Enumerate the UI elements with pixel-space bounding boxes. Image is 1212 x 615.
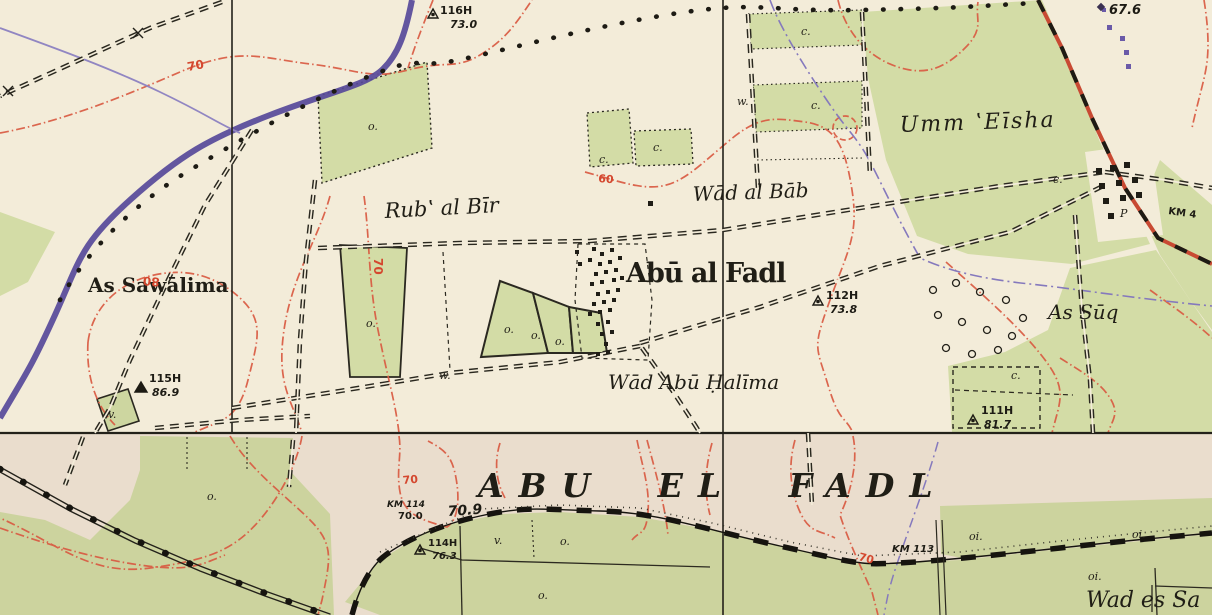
tri-115-elev: 86.9 — [152, 386, 179, 399]
parcel-letter: oi. — [969, 530, 983, 543]
parcel-letter: o. — [560, 535, 570, 548]
tri-111-station: 111H — [981, 404, 1013, 417]
tri-114-station: 114H — [428, 538, 457, 549]
parcel-letter: P — [1119, 207, 1128, 220]
parcel-letter: w. — [439, 369, 451, 382]
km-114-elev: 70.0 — [398, 511, 423, 522]
parcel-letter: c. — [811, 99, 821, 112]
parcel-letter: o. — [504, 323, 514, 336]
contour-70-a: 70 — [186, 57, 205, 74]
tri-116-station: 116H — [440, 4, 472, 17]
parcel-letter: c. — [801, 25, 811, 38]
parcel-letter: c. — [653, 141, 663, 154]
benchmark-70-9: 70.9 — [447, 502, 483, 520]
contour-60: 60 — [598, 172, 615, 186]
km-114-label: KM 114 — [387, 500, 425, 510]
km-113-label: KM 113 — [892, 544, 934, 555]
label-sheet-title: ABU EL FADL — [475, 466, 948, 505]
contour-80: 80 — [142, 274, 160, 289]
tri-116-elev: 73.0 — [450, 18, 477, 31]
parcel-letter: o. — [538, 589, 548, 602]
label-wad-es-sa: Wad es Sa — [1086, 588, 1200, 613]
parcel-letter: c. — [1053, 173, 1063, 186]
parcel-letter: o. — [368, 120, 378, 133]
parcel-letter: v. — [494, 534, 502, 547]
parcel-letter: o. — [531, 329, 541, 342]
parcel-letter: v. — [108, 408, 116, 421]
label-abu-al-fadl: Abū al Fadl — [625, 258, 786, 289]
label-wad-abu-halima: Wād Abū Ḥalīma — [608, 370, 779, 394]
parcel-letter: o. — [555, 335, 565, 348]
survey-map: Rubʽ al Bīr Wād al Bāb Abū al Fadl As Sa… — [0, 0, 1212, 615]
label-as-suq: As Sūq — [1046, 300, 1118, 324]
parcel-letter: o. — [366, 317, 376, 330]
parcel-letter: c. — [1011, 369, 1021, 382]
tri-115-station: 115H — [149, 372, 181, 385]
label-wad-al-bab: Wād al Bāb — [692, 178, 809, 206]
parcel-letter: w. — [737, 95, 749, 108]
spot-height-67-6: 67.6 — [1109, 3, 1141, 18]
parcel-letter: c. — [599, 153, 609, 166]
map-canvas: Rubʽ al Bīr Wād al Bāb Abū al Fadl As Sa… — [0, 0, 1212, 615]
tri-114-elev: 76.3 — [432, 551, 457, 562]
tri-111-elev: 81.7 — [984, 418, 1011, 431]
tri-112-elev: 73.8 — [830, 303, 857, 316]
parcel-letter: o. — [207, 490, 217, 503]
contour-70-b: 70 — [371, 258, 385, 275]
tri-112-station: 112H — [826, 289, 858, 302]
parcel-letter: oi. — [1088, 570, 1102, 583]
contour-70-c: 70 — [402, 473, 419, 487]
parcel-letter: oi. — [1132, 528, 1146, 541]
